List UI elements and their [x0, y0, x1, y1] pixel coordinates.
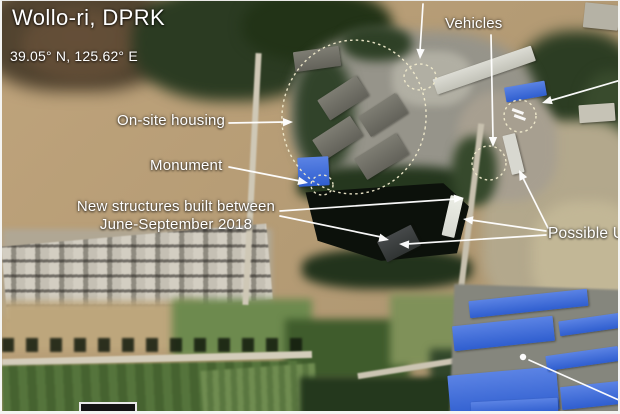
- monument-blue-building: [297, 156, 329, 187]
- label-on-site-housing: On-site housing: [117, 112, 225, 129]
- satellite-map: Wollo-ri, DPRK 39.05° N, 125.62° E Vehic…: [0, 0, 620, 414]
- label-possible-ugf: Possible UG: [548, 225, 620, 243]
- coordinates-label: 39.05° N, 125.62° E: [10, 48, 138, 64]
- label-new-structures: New structures built between June-Septem…: [74, 198, 278, 234]
- gray-building-topright: [583, 2, 620, 31]
- label-monument: Monument: [150, 157, 222, 174]
- arrow-on-site-housing: [229, 118, 293, 127]
- page-title: Wollo-ri, DPRK: [12, 5, 165, 31]
- watermark-box: [79, 402, 137, 414]
- bush-row: [2, 338, 307, 352]
- label-new-structures-line2: June-September 2018: [74, 216, 278, 234]
- label-vehicles: Vehicles: [445, 15, 502, 32]
- terrain-trees-mid: [342, 26, 412, 61]
- gray-building-right: [578, 103, 615, 123]
- label-new-structures-line1: New structures built between: [74, 198, 278, 216]
